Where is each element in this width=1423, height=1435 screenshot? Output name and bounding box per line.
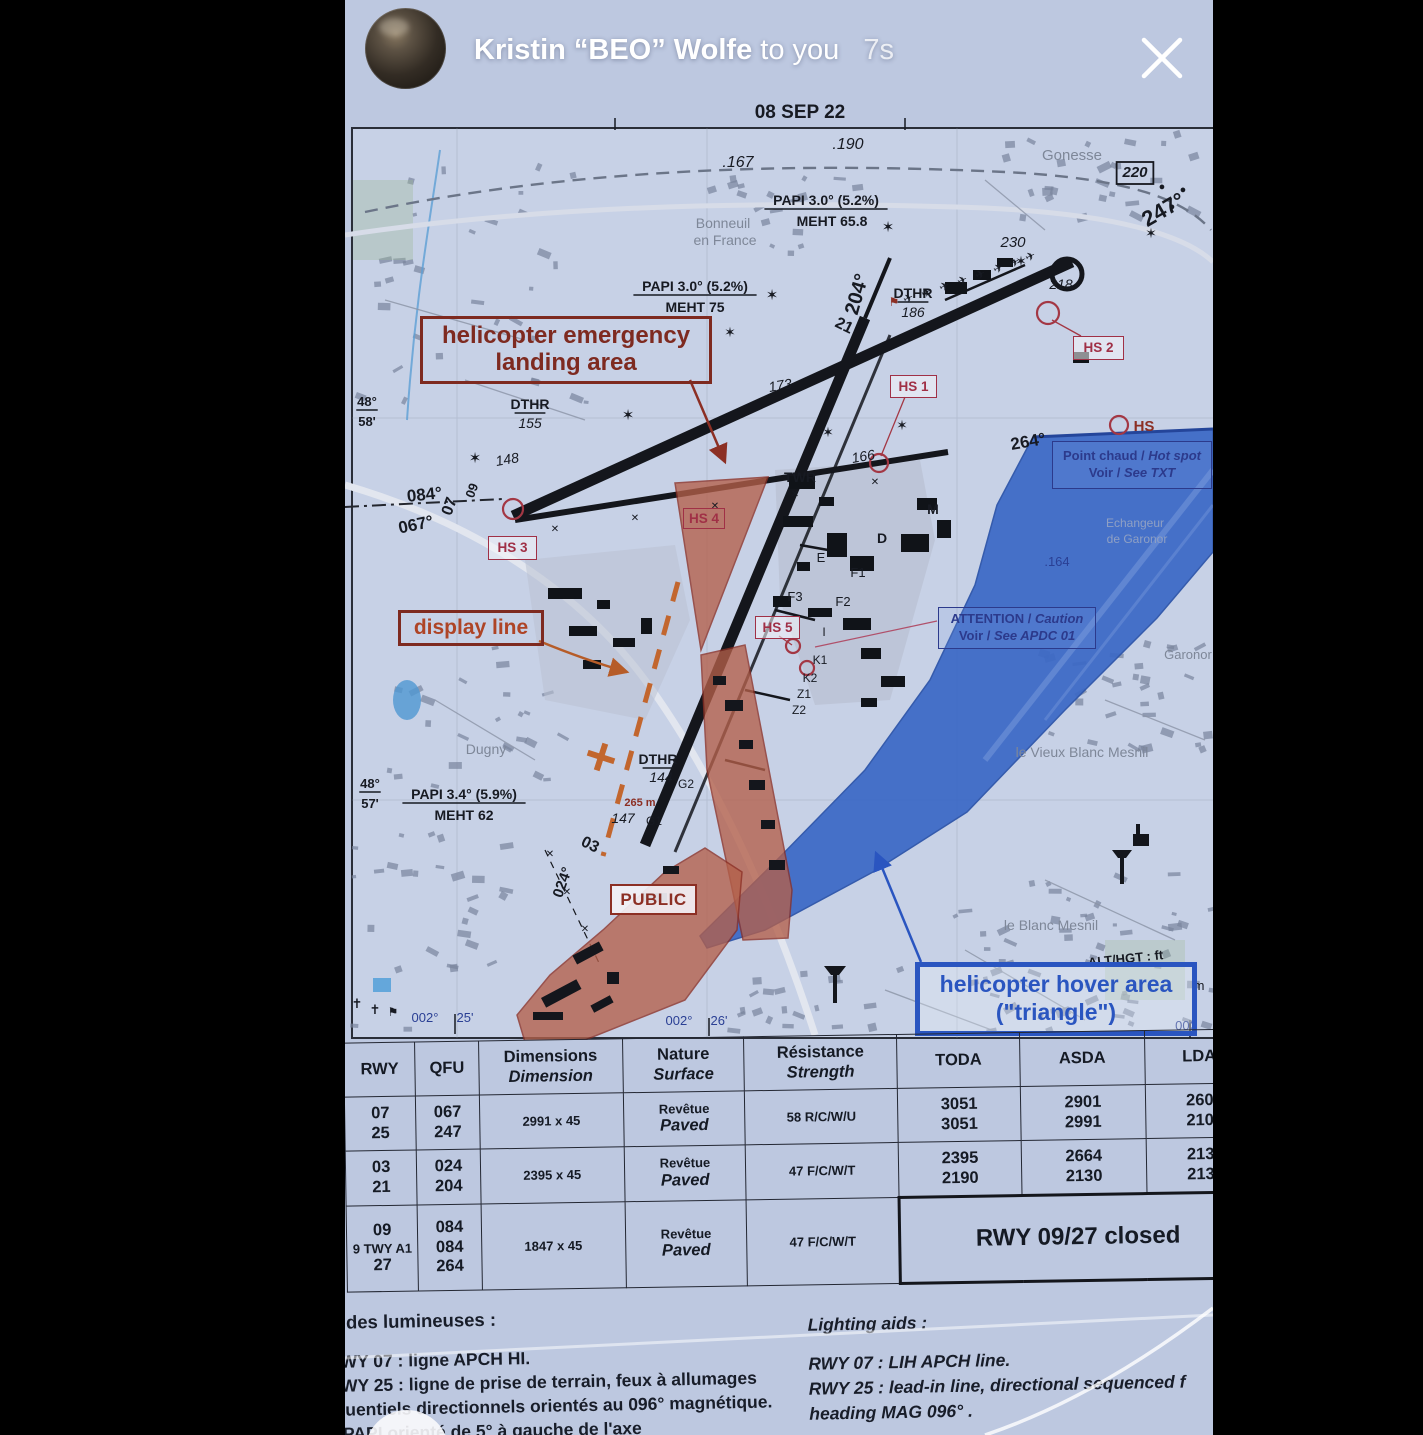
en-line: heading MAG 096° . [809,1395,1213,1424]
box-line: Voir / See TXT [1089,465,1175,482]
map-label: .167 [722,154,754,171]
box-line: Point chaud / Hot spot [1063,448,1201,465]
table-cell: RevêtuePaved [623,1091,746,1147]
building-block [441,166,446,174]
building-block [1132,674,1139,681]
map-label: ⚑ [889,295,900,309]
building-block [1029,880,1036,887]
cell-line: 084 [418,1237,481,1258]
building-block [1161,141,1166,146]
building-block [413,870,419,876]
cell-line: Revêtue [624,1100,745,1117]
hotspot-label-hs4: HS 4 [683,508,725,529]
map-label: PAPI 3.4° (5.9%) [411,786,517,802]
building-block [472,876,485,884]
header-line: ASDA [1020,1048,1144,1070]
building-block [1019,214,1026,222]
building-block [401,869,413,877]
map-label: Echangeur [1106,516,1164,530]
cell-line: 3051 [898,1094,1021,1116]
cell-line: 47 F/C/W/T [747,1233,898,1251]
map-label: ✕ [581,924,589,935]
building-block [584,400,589,404]
cell-line: 58 R/C/W/U [745,1108,897,1126]
map-label: 084° [406,483,443,506]
map-label: ✕ [871,477,879,488]
map-label: I [822,625,825,639]
building-block [781,1006,787,1014]
table-row: 099 TWY A1270840842641847 x 45RevêtuePav… [346,1192,1213,1292]
table-cell: 47 F/C/W/T [746,1197,900,1285]
map-label: 25' [457,1010,474,1025]
map-label: de Garonor [1107,532,1168,546]
map-label: Garonor [1164,647,1212,662]
header-line: QFU [416,1058,479,1079]
table-header-cell: QFU [415,1041,479,1096]
cell-line: 264 [419,1257,482,1278]
building-block [352,875,357,879]
building-block [449,762,462,769]
table-cell: 067247 [416,1095,480,1150]
map-label: MEHT 65.8 [797,213,868,229]
table-header-cell: ASDA [1020,1031,1145,1087]
map-label: D [877,530,887,546]
cell-line: 2190 [899,1168,1022,1190]
cell-line: 2664 [1022,1146,1146,1168]
cell-line: 09 [347,1220,418,1241]
cell-line: 210 [1146,1110,1213,1131]
map-label: Z1 [797,687,811,701]
map-label: 48° [357,394,377,409]
table-cell: 024204 [417,1149,481,1205]
header-line: RWY [345,1059,415,1080]
table-header-cell: DimensionsDimension [478,1039,623,1095]
table-cell: 47 F/C/W/T [745,1142,898,1199]
building-block [793,229,804,236]
header-line: Surface [623,1064,744,1086]
sender-name[interactable]: Kristin “BEO” Wolfe [474,34,752,66]
header-line: Dimension [479,1066,622,1088]
table-cell: 29012991 [1021,1085,1146,1141]
map-label: F3 [787,589,802,604]
map-label: M [927,501,939,517]
map-label: Z2 [792,703,806,717]
attention-caution-box: ATTENTION / Caution Voir / See APDC 01 [938,607,1096,649]
cell-line: 213 [1146,1144,1213,1165]
map-label: ✕ [551,524,559,535]
table-cell: 2395 x 45 [480,1147,625,1204]
box-line: HS 1 [898,379,928,394]
cell-line: 024 [417,1157,480,1178]
building-block [374,281,381,287]
en-title: Lighting aids : [807,1307,1213,1336]
building-block [1140,675,1151,684]
map-label: HS [1134,418,1155,435]
building-block [984,947,990,951]
table-cell: 23952190 [898,1141,1022,1198]
hot-spot-note-box: Point chaud / Hot spot Voir / See TXT [1052,441,1212,489]
map-label: ✶ [766,287,779,304]
text: to you [760,34,839,66]
cell-line: 1847 x 45 [482,1237,625,1255]
map-label: Bonneuil [696,215,751,231]
cell-line: 3051 [898,1114,1021,1136]
cell-line: 07 [345,1103,416,1124]
building-block [1134,663,1143,670]
helicopter-emergency-landing-area-box: helicopter emergency landing area [420,316,712,384]
box-line: HS 5 [762,620,792,635]
text: Voir / [1089,465,1121,480]
hotspot-label-hs3: HS 3 [488,536,537,560]
text: Point chaud / [1063,448,1145,463]
cell-line: Paved [626,1241,747,1263]
text: Voir / [959,628,991,643]
cell-line: 260 [1145,1090,1213,1111]
box-line: HS 3 [497,540,527,555]
map-label: ⚑ [388,1005,399,1019]
hotspot-label-hs5: HS 5 [755,616,800,639]
map-label: Gonesse [1042,147,1102,164]
building-block [394,774,403,780]
table-header-cell: RWY [345,1042,416,1097]
map-label: ✶ [1145,225,1157,241]
map-label: 155 [518,415,542,431]
map-label: ✶ [724,324,736,340]
fr-title: Aides lumineuses : [345,1303,808,1334]
cell-line: 03 [346,1158,417,1179]
box-line: helicopter hover area [940,971,1173,999]
map-label: G2 [678,777,694,791]
map-label: 26' [711,1013,728,1028]
building-block [543,778,551,782]
cell-line: 21 [346,1178,417,1199]
map-label: ✕ [631,513,639,524]
map-label: ● [1159,181,1166,193]
table-cell: RevêtuePaved [625,1200,748,1288]
story-header-text: Kristin “BEO” Wolfe to you 7s [474,34,894,67]
building-block [352,846,358,850]
map-label: 48° [360,776,380,791]
building-block [1044,186,1053,190]
story-photo[interactable]: ERO MA [345,0,1213,1435]
table-cell: 1847 x 45 [481,1202,626,1290]
header-line: Résistance [744,1042,896,1064]
map-label: 002° [666,1013,693,1028]
box-line: ("triangle") [996,999,1116,1027]
box-line: HS 4 [689,511,719,526]
table-cell: 30513051 [897,1087,1021,1143]
building-block [1113,923,1117,926]
building-block [1049,889,1062,894]
map-label: ✶ [622,407,635,424]
building-block [1203,731,1213,740]
table-header-cell: TODA [896,1033,1020,1089]
cell-line: 2991 [1021,1112,1145,1134]
cell-line: 2901 [1021,1092,1145,1114]
lighting-aids-english: Lighting aids : RWY 07 : LIH APCH line. … [807,1307,1213,1429]
map-label: MEHT 75 [665,299,724,315]
table-header-cell: RésistanceStrength [744,1034,897,1090]
map-label: F1 [850,565,865,580]
cell-line: 47 F/C/W/T [746,1162,898,1180]
map-label: F2 [835,594,850,609]
box-line: HS 2 [1083,340,1113,355]
table-cell: 099 TWY A127 [346,1205,419,1292]
map-label: 218 [1048,276,1073,292]
building-block [503,692,510,697]
building-block [832,1024,843,1029]
header-line: Strength [745,1061,897,1083]
map-label: K2 [803,671,818,685]
building-block [980,931,986,937]
table-header-cell: LDA [1144,1029,1213,1085]
building-block [1168,872,1181,876]
map-label: 230 [999,234,1026,251]
building-block [788,250,794,256]
map-label: DTHR [639,751,678,767]
map-label: 144 [649,769,673,785]
map-label: 58' [358,414,376,429]
avatar[interactable] [365,8,446,89]
map-label: .190 [832,136,863,153]
timestamp: 7s [863,34,894,66]
map-label: 08 SEP 22 [755,102,846,123]
map-label: en France [693,232,756,248]
text: Caution [1035,611,1083,626]
map-label: PAPI 3.0° (5.2%) [642,278,748,294]
text: Hot spot [1148,448,1201,463]
text: See APDC 01 [994,628,1075,643]
map-label: ✕ [563,887,571,898]
map-label: ✕ [546,849,554,860]
map-label: .164 [1044,554,1069,569]
cell-line: 067 [416,1102,479,1123]
header-line: TODA [897,1050,1020,1072]
map-label: E [817,550,826,565]
table-cell: 58 R/C/W/U [745,1088,898,1144]
cell-line: Paved [624,1116,745,1138]
box-line: display line [414,616,528,640]
lighting-aids-french: Aides lumineuses : RWY 07 : ligne APCH H… [345,1303,810,1435]
text: ATTENTION / [951,611,1032,626]
building-block [378,303,391,311]
building-block [496,661,510,668]
cell-line: 27 [347,1256,418,1277]
table-cell: 260210 [1145,1083,1213,1139]
cell-line: 2395 x 45 [481,1166,624,1184]
map-label: ● [1169,201,1176,213]
map-label: 147 [611,810,636,826]
table-cell: 2991 x 45 [479,1093,624,1149]
building-block [729,175,736,183]
building-block [752,977,761,985]
map-label: MEHT 62 [434,807,493,823]
cell-line: 2395 [899,1148,1022,1170]
map-label: 57' [361,796,379,811]
cell-line: 25 [345,1123,416,1144]
runway-closed-cell: RWY 09/27 closed [899,1192,1213,1284]
close-icon [1144,40,1180,76]
table-cell: 084084264 [417,1204,482,1291]
building-block [763,988,774,995]
hotspot-label-hs2: HS 2 [1073,336,1124,360]
header-line: Dimensions [479,1046,622,1068]
cell-line: 213 [1147,1164,1213,1185]
map-label: ✶ [469,450,482,467]
hotspot-label-hs1: HS 1 [890,375,937,398]
table-cell: 0321 [345,1150,417,1206]
map-label: PAPI 3.0° (5.2%) [773,192,879,208]
cell-line: 084 [418,1217,481,1238]
building-block [425,720,431,727]
en-line: RWY 07 : LIH APCH line. [808,1346,1213,1375]
table-header-cell: NatureSurface [622,1037,745,1093]
en-line: RWY 25 : lead-in line, directional seque… [809,1370,1213,1399]
runway-data-table: RWYQFUDimensionsDimensionNatureSurfaceRé… [345,1028,1213,1293]
map-label: ✶ [896,417,908,433]
recipient-label: to you [760,34,839,66]
map-label: ✶ [822,424,834,440]
table-cell: RevêtuePaved [624,1145,747,1202]
cell-line: 2130 [1022,1166,1146,1188]
box-line: PUBLIC [620,890,686,909]
box-line: landing area [495,350,636,377]
cell-line: 2991 x 45 [480,1112,623,1130]
map-label: ✝ [352,996,363,1011]
building-block [449,964,458,972]
close-button[interactable] [1132,28,1192,88]
header-line: Nature [623,1044,744,1066]
table-cell: 213213 [1146,1137,1213,1194]
screen: ERO MA [0,0,1423,1435]
building-block [1064,934,1073,941]
display-line-box: display line [398,610,544,646]
table-cell: 0725 [345,1096,417,1151]
building-block [367,925,374,932]
map-label: 002° [412,1010,439,1025]
cell-line: 247 [417,1122,480,1143]
building-block [1005,141,1015,148]
cell-line: 9 TWY A1 [347,1240,418,1257]
header-line: LDA [1145,1046,1213,1067]
building-block [387,768,393,774]
map-label: G1 [646,814,662,828]
box-line: ATTENTION / Caution [951,611,1084,628]
map-label: 265 m [624,797,655,809]
building-block [800,971,808,978]
box-line: helicopter emergency [442,323,690,350]
map-label: TWR [784,469,816,485]
map-label: DTHR [511,396,550,412]
map-label: 186 [901,304,925,320]
building-block [529,287,534,291]
cell-line: Paved [625,1170,746,1192]
map-label: ✕ [791,489,799,500]
map-label: ✝ [370,1002,381,1017]
building-block [1140,702,1149,707]
public-area-box: PUBLIC [610,884,697,915]
building-block [350,1024,358,1029]
helicopter-hover-area-box: helicopter hover area ("triangle") [915,962,1197,1036]
box-line: Voir / See APDC 01 [959,628,1075,645]
map-label: ✶ [882,219,895,236]
map-label: 220 [1121,164,1148,181]
building-block [403,1027,412,1032]
cell-line: Revêtue [626,1225,747,1242]
building-block [782,1024,793,1029]
airport-chart: 08 SEP 22.190.167Gonesse220247°●●●230✶✶P… [345,0,1213,1040]
text: See TXT [1124,465,1175,480]
cell-line: 204 [417,1177,480,1198]
map-label: le Vieux Blanc Mesnil [1016,744,1149,760]
map-label: K1 [813,653,828,667]
map-label: Dugny [466,741,506,757]
table-cell: 26642130 [1021,1139,1146,1196]
building-block [553,261,558,269]
map-label: ● [1180,184,1187,196]
building-block [518,191,523,195]
map-label: le Blanc Mesnil [1004,917,1098,933]
